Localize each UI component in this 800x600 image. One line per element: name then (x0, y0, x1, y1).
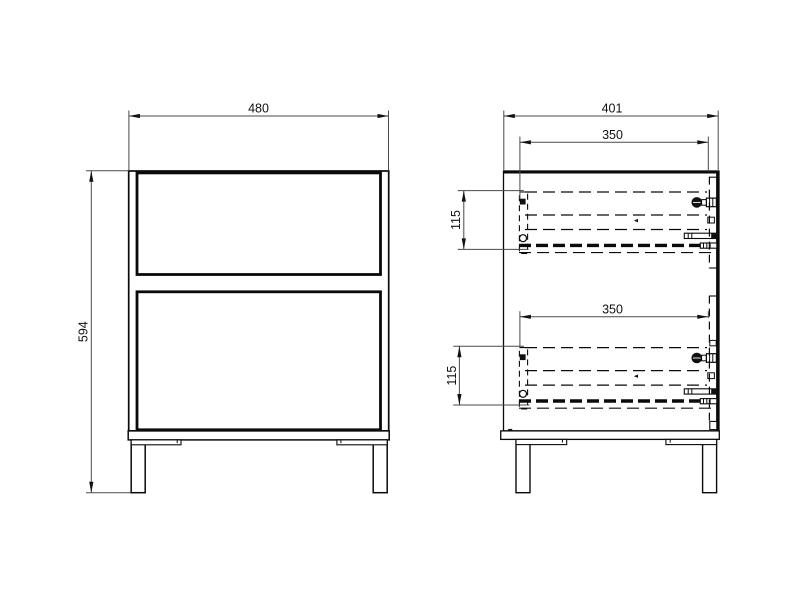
dim-front-width: 480 (129, 102, 389, 171)
arrowhead-up (457, 346, 461, 357)
rail-end-fitting (700, 399, 717, 404)
dim-label-lower-slide-height: 115 (445, 366, 459, 386)
screw-body (706, 198, 716, 207)
front-right-leg-plate (337, 440, 387, 445)
side-right-leg-plate (666, 439, 717, 444)
base-plate-front (128, 431, 389, 440)
side-bottom-right-bracket (710, 421, 717, 429)
side-right-leg (703, 441, 717, 493)
side-left-leg (516, 441, 530, 493)
rear-mount-hole (520, 390, 527, 397)
dim-label-upper-slide-length: 350 (602, 128, 623, 142)
bracket-block (711, 233, 717, 239)
arrowhead-right (378, 114, 389, 118)
dim-label-front-height: 594 (77, 321, 91, 342)
screw-body (706, 354, 716, 363)
rail-end-fitting (700, 243, 717, 248)
drawing-canvas: 480 594 401 350 (0, 0, 800, 600)
dim-label-lower-slide-length: 350 (602, 302, 623, 316)
arrowhead-down (89, 482, 93, 493)
arrowhead-down (457, 394, 461, 405)
dim-front-height: 594 (77, 171, 131, 493)
lower-drawer-front (137, 292, 381, 430)
technical-drawing: 480 594 401 350 (0, 0, 800, 600)
arrowhead-left (520, 140, 531, 144)
front-left-leg (131, 441, 145, 493)
bracket-block (711, 389, 717, 395)
side-left-leg-plate (516, 439, 567, 444)
rear-mount-pin (520, 199, 526, 205)
rear-mount-hole (520, 235, 527, 242)
screw-nub (702, 200, 707, 206)
base-plate-side (501, 431, 720, 440)
arrowhead-up (462, 191, 466, 202)
arrowhead-down (462, 238, 466, 249)
arrowhead-left (504, 114, 515, 118)
upper-drawer-front (137, 173, 381, 275)
dim-label-side-depth: 401 (602, 102, 623, 116)
rear-mount-pin (520, 354, 526, 360)
arrowhead-right (707, 114, 718, 118)
arrowhead-right (697, 140, 708, 144)
screw-nub (702, 355, 707, 361)
dim-label-upper-slide-height: 115 (449, 210, 463, 230)
arrowhead-left (129, 114, 140, 118)
front-view (128, 171, 389, 493)
dim-label-front-width: 480 (248, 102, 269, 116)
front-left-leg-plate (131, 440, 181, 445)
side-view (501, 171, 720, 493)
arrowhead-up (89, 171, 93, 182)
front-right-leg (373, 441, 387, 493)
